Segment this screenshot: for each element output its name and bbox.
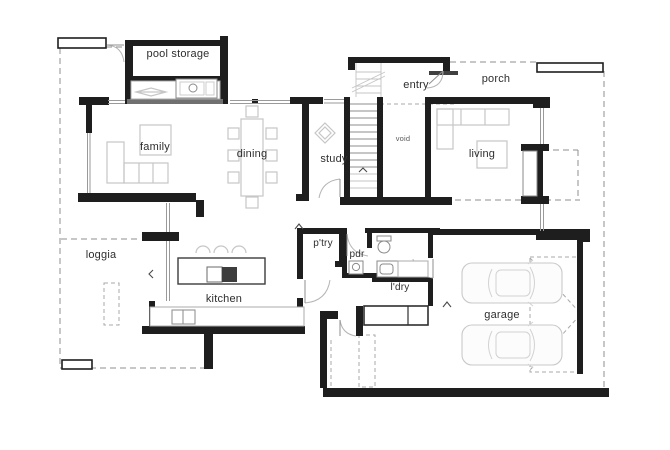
room-label-laundry: l'dry <box>390 282 409 293</box>
wall-segment-loggia <box>62 360 92 369</box>
mudroom-door-arc <box>340 320 356 336</box>
toilet-icon <box>377 236 391 253</box>
room-label-powder: pdr <box>349 249 365 260</box>
wall-segment-top-left <box>58 38 106 48</box>
room-label-void: void <box>396 134 411 143</box>
study-table <box>315 123 335 143</box>
family-sofa <box>107 125 171 183</box>
room-label-family: family <box>140 141 170 153</box>
pantry-door-arc <box>305 280 330 303</box>
floor-plan-drawing: pool storage entry porch family dining s… <box>0 0 670 450</box>
room-label-study: study <box>320 153 348 165</box>
floor-plan-page: pool storage entry porch family dining s… <box>0 0 670 450</box>
pool-storage-gate-arc <box>107 45 124 62</box>
stair-direction-arrow <box>359 168 367 172</box>
room-label-dining: dining <box>237 148 268 160</box>
room-label-garage: garage <box>484 309 519 321</box>
wall-segment-porch <box>537 63 603 72</box>
room-label-kitchen: kitchen <box>206 293 242 305</box>
room-label-pool-storage: pool storage <box>147 48 210 60</box>
door-tick <box>443 302 451 307</box>
kitchen-sink-icon <box>150 307 304 326</box>
room-label-porch: porch <box>482 73 511 85</box>
powder-sink-icon <box>349 261 363 274</box>
room-label-living: living <box>469 148 495 160</box>
study-door-arc <box>319 179 340 198</box>
door-tick <box>149 270 153 278</box>
mudroom-bench <box>364 306 428 325</box>
fireplace <box>523 151 537 196</box>
room-label-pantry: p'try <box>313 238 333 249</box>
car <box>462 322 562 368</box>
car <box>462 260 562 306</box>
kitchen-island <box>178 246 265 284</box>
room-label-entry: entry <box>403 79 429 91</box>
bbq-counter <box>131 79 220 99</box>
laundry-sink-icon <box>377 261 428 277</box>
loggia-planter <box>104 283 119 325</box>
room-label-loggia: loggia <box>86 249 117 261</box>
